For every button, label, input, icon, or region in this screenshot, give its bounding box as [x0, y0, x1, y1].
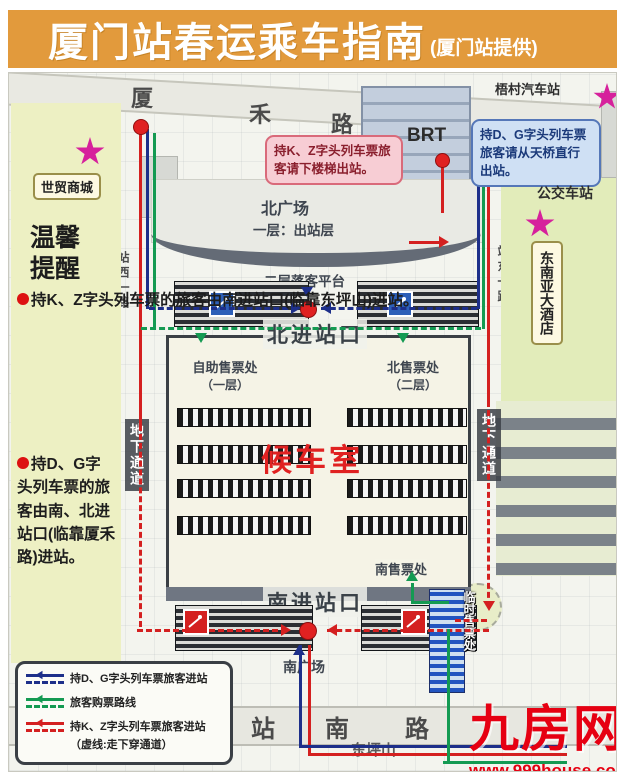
seat-row [177, 516, 311, 535]
legend-label-ticket: 旅客购票路线 [70, 694, 136, 710]
north-ticket-office: 北售票处 （二层） [365, 357, 461, 393]
notice-item-kz-text: 持K、Z字头列车票的旅客由南进站口(临靠东坪山)进站。 [31, 292, 419, 309]
station-map: 厦 禾 路 站 南 路 东坪山 站西一路 站东一路 BRT BRT站台 北广场 … [8, 72, 617, 772]
self-ticket-floor-label: （一层） [177, 376, 273, 393]
route-exit-line [409, 241, 439, 244]
railway-tracks [496, 401, 617, 576]
route-kz-line [137, 629, 287, 632]
arrow-left-icon [327, 624, 337, 636]
seat-row [347, 445, 467, 464]
arrow-down-icon [397, 333, 409, 343]
route-kz-line [139, 129, 142, 425]
legend-row-kz: 持K、Z字头列车票旅客进站 [26, 718, 224, 734]
arrow-up-icon [406, 571, 418, 581]
south-ticket-label: 南售票处 [375, 559, 427, 578]
seat-row [177, 479, 311, 498]
route-kz-underpass-line [455, 619, 487, 622]
kz-exit-callout: 持K、Z字头列车票旅客请下楼梯出站。 [265, 135, 403, 185]
arrow-down-icon [195, 333, 207, 343]
arrow-down-icon [483, 601, 495, 611]
red-bullet-icon [17, 457, 29, 469]
notice-item-dg: 持D、G字头列车票的旅客由南、北进站口(临靠厦禾路)进站。 [17, 453, 116, 569]
seat-row [347, 408, 467, 427]
arrow-right-icon [439, 236, 449, 248]
page-header: 厦门站春运乘车指南 (厦门站提供) [8, 10, 617, 68]
shimao-mall-label: 世贸商城 [33, 173, 101, 200]
xiahe-road-label-1: 厦 [131, 81, 153, 113]
zhannan-road-label-3: 路 [405, 709, 429, 744]
watermark-logo: 九房网 [469, 689, 617, 761]
route-kz-line [487, 175, 490, 401]
north-ticket-label: 北售票处 [365, 357, 461, 376]
route-dg-line [299, 645, 302, 745]
kz-route-swatch-icon [26, 720, 64, 732]
page-title: 厦门站春运乘车指南 [48, 10, 426, 68]
bus-station-label: 公交车站 [537, 183, 593, 203]
self-ticket-office: 自助售票处 （一层） [177, 357, 273, 393]
hotel-label: 东南亚大酒店 [531, 241, 563, 345]
legend-row-ticket: 旅客购票路线 [26, 694, 224, 710]
red-bullet-icon [17, 293, 29, 305]
route-start-dot [133, 119, 149, 135]
wucun-bus-station-label: 梧村汽车站 [495, 79, 560, 98]
route-ticket-line [141, 327, 481, 330]
underpass-label-west: 地下通道 [125, 419, 149, 491]
seat-row [177, 408, 311, 427]
notice-item-kz: 持K、Z字头列车票的旅客由南进站口(临靠东坪山)进站。 [17, 289, 419, 312]
legend-row-dg: 持D、G字头列车票旅客进站 [26, 670, 224, 686]
notice-title: 温馨提醒 [27, 223, 83, 286]
dongpingshan-label: 东坪山 [351, 739, 396, 760]
watermark-url: www.999house.com [469, 761, 617, 772]
notice-item-dg-text: 持D、G字头列车票的旅客由南、北进站口(临靠厦禾路)进站。 [17, 456, 115, 566]
seat-row [347, 516, 467, 535]
ticket-route-swatch-icon [26, 696, 64, 708]
legend-label-kz: 持K、Z字头列车票旅客进站 [70, 718, 206, 734]
route-kz-line [308, 645, 311, 753]
route-ticket-line [447, 629, 450, 763]
legend-label-dg: 持D、G字头列车票旅客进站 [70, 670, 208, 686]
route-kz-line [327, 629, 489, 632]
xiahe-road-label-2: 禾 [249, 97, 271, 129]
page-credit: (厦门站提供) [430, 33, 538, 60]
route-dg-line [146, 129, 149, 309]
route-ticket-line [411, 583, 414, 603]
seat-row [347, 479, 467, 498]
north-square-label: 北广场 [261, 195, 309, 219]
route-kz-underpass-line [139, 425, 142, 627]
dg-exit-callout: 持D、G字头列车票旅客请从天桥直行出站。 [471, 119, 601, 187]
north-square-floor-label: 一层：出站层 [253, 219, 334, 239]
route-exit-line [441, 161, 444, 213]
route-kz-underpass-line [487, 401, 490, 607]
watermark: 九房网 www.999house.com [469, 689, 617, 772]
south-gate-dot [299, 622, 317, 640]
south-square-label: 南广场 [283, 657, 325, 677]
arrow-up-icon [293, 645, 305, 655]
zhannan-road-label-2: 南 [325, 709, 349, 744]
arrow-right-icon [281, 624, 291, 636]
north-gate-label: 北进站口 [263, 319, 367, 349]
brt-label: BRT [407, 125, 446, 147]
dg-route-swatch-icon [26, 672, 64, 684]
zhannan-road-label-1: 站 [251, 709, 275, 744]
north-ticket-floor-label: （二层） [365, 376, 461, 393]
route-ticket-line [482, 170, 485, 329]
map-legend: 持D、G字头列车票旅客进站 旅客购票路线 持K、Z字头列车票旅客进站 （虚线:走… [15, 661, 233, 765]
legend-note: （虚线:走下穿通道） [70, 736, 224, 752]
self-ticket-label: 自助售票处 [177, 357, 273, 376]
route-ticket-line [411, 601, 449, 604]
waiting-hall-label: 候车室 [261, 435, 363, 480]
callout-anchor-dot [435, 153, 450, 168]
